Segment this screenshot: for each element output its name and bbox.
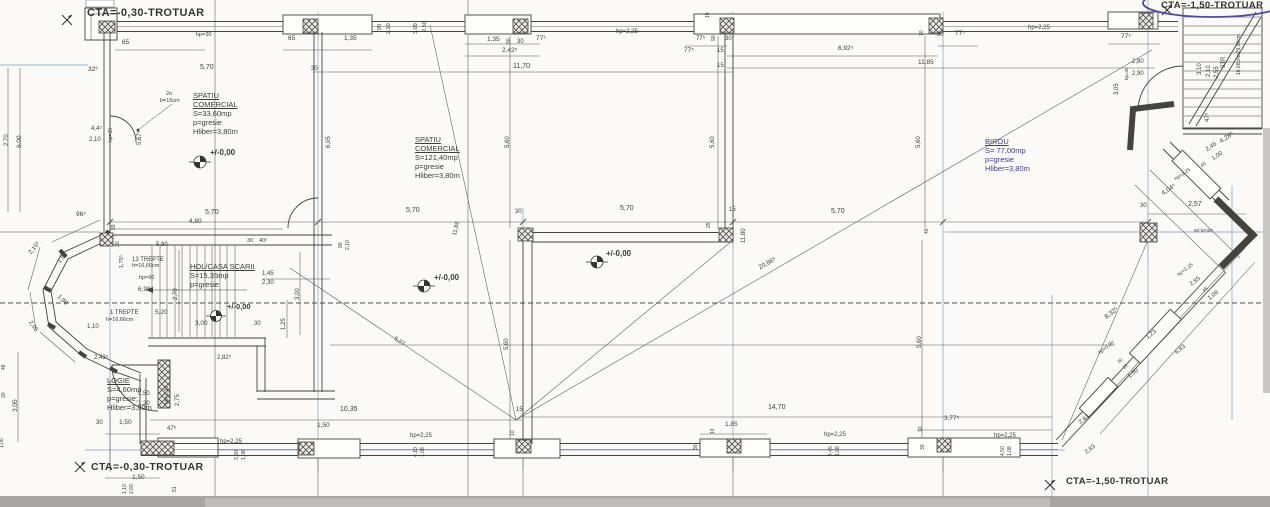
room-label-birou: BIROU S= 77,00mp p=gresie Hliber=3,80m [985, 137, 1055, 173]
dimension-label: 2,82⁵ [217, 355, 231, 361]
room-height: Hliber=3,80m [415, 171, 479, 180]
dimension-label: 2,70 [173, 288, 179, 300]
room-label-spatiu-comercial-1: SPATIU COMERCIAL S=33,60mp p=gresie Hlib… [193, 91, 257, 136]
dimension-label: hp=30 [109, 128, 114, 142]
dimension-label: 4,45 [829, 446, 834, 456]
dimension-label: 90 [339, 242, 344, 248]
dimension-label: 77⁵ [684, 48, 694, 55]
dimension-label: 30 [311, 66, 318, 72]
dimension-label: 30 [254, 321, 261, 327]
site-level-label-bottom-left: CTA=-0,30-TROTUAR [91, 461, 204, 473]
dimension-label: 30 [96, 420, 103, 426]
dimension-label: 1,08 [421, 447, 426, 457]
dimension-label: 40⁵ [259, 239, 267, 245]
dimension-label: hp=2,25 [1028, 25, 1050, 31]
dimension-label: 90 [712, 35, 717, 41]
floor-plan: 65hp=3032⁵5,7030651,352ob=15cm4,4⁵2,10hp… [0, 0, 1270, 507]
dimension-label: 3,00 [195, 321, 208, 328]
dimension-label: 1,35 [344, 36, 357, 43]
dimension-label: 3,00 [295, 288, 301, 300]
dimension-label: 3,10 [1197, 63, 1203, 75]
dimension-label: 15 [729, 207, 736, 213]
dimension-label: 1,50 [132, 475, 145, 482]
dimension-label: 5,70 [620, 205, 634, 212]
dimension-label: 15 [706, 12, 711, 18]
dimension-label: 2,42⁵ [502, 48, 517, 55]
dimension-label: 2o [166, 92, 172, 98]
walls [43, 8, 1262, 458]
room-area: S=4,60mp [107, 385, 177, 394]
dimension-label: 3,30 [235, 450, 240, 460]
dimension-label: 4,4⁵ [91, 126, 102, 132]
dimension-label: 1,08 [242, 450, 247, 460]
dimension-label: hp=2,25 [994, 433, 1016, 439]
dimension-label: 65 [288, 36, 295, 43]
dimension-label: 5,70 [831, 208, 845, 215]
dimension-label: 30 [116, 241, 121, 247]
dimension-label: 1,08 [836, 446, 841, 456]
room-title: BIROU [985, 137, 1055, 146]
dimension-label: b=15cm [160, 99, 180, 105]
dimension-label: 90 [378, 24, 384, 30]
level-marker-label: +/-0,00 [227, 303, 251, 311]
room-title: HOL/CASA SCARII [190, 262, 300, 271]
dimension-label: 6,05 [326, 136, 332, 148]
dimension-label: 30 [725, 36, 732, 42]
dimension-label: 14,70 [768, 404, 786, 411]
dimension-label: 9TR [1221, 57, 1227, 68]
dimension-label: 2,10 [89, 137, 101, 143]
dimension-label: 5,60 [505, 136, 511, 148]
dimension-label: 1,25 [281, 318, 287, 330]
dimension-label: 6,00 [17, 135, 24, 148]
dimension-label: 10,35 [340, 406, 358, 413]
stair-note: h=16,66cm [132, 264, 159, 270]
room-floor: p=gresie [985, 155, 1055, 164]
room-area: S= 77,00mp [985, 146, 1055, 155]
dimension-label: 5,80 [156, 242, 168, 248]
site-level-label-top-left: CTA=-0,30-TROTUAR [87, 7, 205, 19]
dimension-label: 3,77⁵ [944, 416, 959, 423]
dimension-label: 1,06 [0, 438, 5, 448]
dimension-label: 1,10 [123, 484, 128, 494]
dimension-label: 1,85 [725, 422, 738, 429]
dimension-label: 2,50 [423, 21, 429, 32]
room-height: Hliber=3,80m [107, 403, 177, 412]
dimension-label: 2,10 [1206, 65, 1212, 77]
dimension-label: 5,60 [916, 136, 922, 148]
dimension-label: 5,70 [200, 64, 214, 71]
dimension-label: 5,67⁵ [137, 131, 143, 145]
dimension-label: 77⁵ [696, 36, 705, 42]
dimension-label: 3,05 [13, 399, 20, 412]
site-level-label-bottom-right: CTA=-1,50-TROTUAR [1066, 476, 1168, 487]
dimension-label: 15 [516, 407, 523, 413]
dimension-label: hp=90 [139, 276, 154, 282]
dimension-label: 77⁵ [955, 31, 965, 38]
dimension-label: 48 [2, 364, 7, 370]
level-marker-label: +/-0,00 [210, 149, 235, 157]
dimension-label: 5,70 [205, 209, 219, 216]
dimension-label: 11,85 [918, 60, 934, 67]
room-floor: p=gresie; [107, 394, 177, 403]
room-label-hol-casa-scarii: HOL/CASA SCARII S=15,35mp p=gresie [190, 262, 300, 289]
site-level-label-top-right: CTA=-1,50-TROTUAR [1161, 0, 1263, 11]
dimension-label: 30 [2, 392, 7, 398]
room-floor: p=gresie [415, 162, 479, 171]
dimension-label: 4,80 [189, 219, 202, 226]
dimension-label: 5,60 [710, 136, 716, 148]
dimension-label: 30 [1140, 203, 1147, 209]
dimension-label: 2,80 [1132, 59, 1144, 65]
dimension-label: 5,70 [406, 207, 420, 214]
dimension-label: 10 [920, 30, 925, 36]
dimension-label: 47⁵ [1205, 113, 1211, 122]
dimension-label: 30 [517, 39, 524, 45]
room-area: S=121,40mp [415, 153, 479, 162]
dimension-label: 25 [707, 222, 712, 228]
dimension-label: 6,92⁵ [838, 46, 853, 53]
dimension-label: 1,08 [1008, 446, 1013, 456]
dimension-label: 1,50 [119, 420, 132, 427]
dimension-label: 90 [507, 38, 512, 44]
dimension-label: 4,50 [1001, 446, 1006, 456]
dimension-label: 15 [717, 48, 724, 54]
room-label-spatiu-comercial-2: SPATIU COMERCIAL S=121,40mp p=gresie Hli… [415, 135, 479, 180]
room-height: Hliber=3,80m [985, 164, 1055, 173]
dimension-label: hp=30 [196, 33, 211, 39]
room-label-logie: LOGIE S=4,60mp p=gresie; Hliber=3,80m [107, 376, 177, 412]
dimension-label: 5,60 [504, 338, 510, 350]
dimension-label: 2,10 [387, 23, 393, 34]
dimension-label: hp=2,25 [616, 29, 638, 35]
dimension-label: 15 [717, 63, 724, 69]
dimension-label: hp=30 [1125, 67, 1130, 80]
floor-plan-drawing [0, 0, 1270, 507]
dimension-label: 65 [122, 40, 129, 47]
stair-note: h=16,66cm [106, 318, 133, 324]
dimension-label: 2,43⁵ [94, 355, 108, 361]
dimension-label: 30 [921, 444, 926, 450]
dimension-label: hp=2,25 [220, 439, 242, 445]
dimension-label: 5,60 [917, 336, 923, 348]
dimension-label: 2,70 [4, 134, 10, 146]
room-floor: p=gresie [193, 118, 257, 127]
dimension-label: 2,10 [346, 240, 351, 250]
dimension-label: 4,10 [414, 447, 419, 457]
room-height: Hliber=3,80m [193, 127, 257, 136]
level-marker-label: +/-0,00 [606, 250, 631, 258]
dimension-label: 2,60 [130, 484, 135, 494]
room-area: S=33,60mp [193, 109, 257, 118]
stair-note: 1 TREPTE [110, 310, 139, 316]
dimension-label: 1,75⁵ [120, 255, 126, 268]
dimension-label: 40 [925, 228, 930, 234]
dimension-label: hp=2,25 [410, 433, 432, 439]
room-floor: p=gresie [190, 280, 300, 289]
dimension-label: 51 [173, 486, 178, 492]
dimension-label: 1,10 [87, 324, 99, 330]
dimension-label: 2,57 [1188, 201, 1202, 208]
dimension-label: 30 [515, 209, 522, 215]
dimension-label: 10 [711, 428, 716, 434]
dimension-label: 1,35 [487, 37, 500, 44]
dimension-label: 2,90 [1132, 71, 1144, 77]
dimension-label: 77⁵ [1121, 34, 1131, 41]
dimension-label: 55 [112, 224, 117, 230]
dimension-label: 10 [511, 430, 516, 436]
dimension-label: hp=2,25 [824, 432, 846, 438]
room-title: SPATIU COMERCIAL [415, 135, 479, 153]
dimension-label: 30 [694, 444, 699, 450]
dimension-label: 85°59'45'' [1194, 229, 1213, 234]
dimension-label: 2,55 [1214, 66, 1220, 78]
dimension-label: 30 [247, 239, 253, 245]
dimension-label: 6,98 [138, 287, 151, 294]
dimension-label: 11,80 [741, 228, 747, 243]
room-area: S=15,35mp [190, 271, 300, 280]
column-sections [99, 13, 1157, 455]
dimension-label: 1,50 [317, 423, 330, 430]
room-title: SPATIU COMERCIAL [193, 91, 257, 109]
dimension-label: 3,00 [414, 23, 420, 34]
dimension-label: 5,20 [155, 310, 168, 317]
dimension-label: 96⁵ [76, 212, 86, 219]
dimension-label: 10 [919, 426, 924, 432]
dimension-label: 32⁵ [88, 67, 98, 74]
dimension-label: 11,70 [513, 63, 530, 70]
dimension-label: 16,66cmx29,00cm [1237, 34, 1242, 75]
scan-artifacts [0, 0, 1270, 507]
dimension-label: 3,05 [1114, 83, 1120, 95]
dimension-label: 77⁵ [536, 36, 546, 43]
dimension-label: 47⁵ [167, 426, 176, 432]
level-marker-label: +/-0,00 [434, 274, 459, 282]
dimension-label: 30 [937, 32, 944, 38]
room-title: LOGIE [107, 376, 177, 385]
